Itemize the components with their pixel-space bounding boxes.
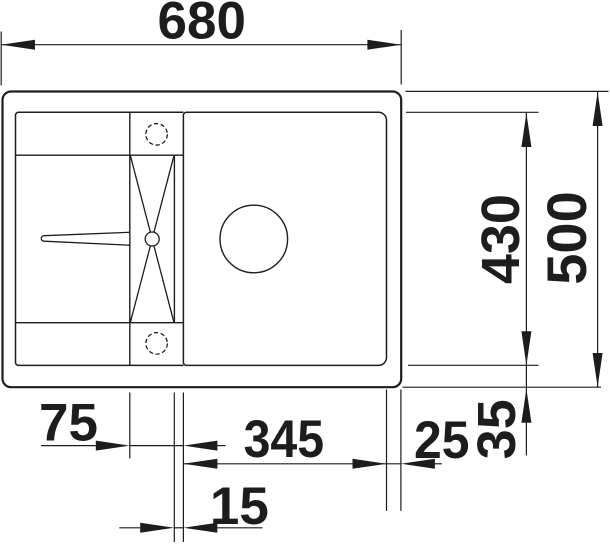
svg-text:500: 500 [535,191,598,284]
svg-text:430: 430 [471,194,531,284]
svg-text:680: 680 [158,0,246,50]
svg-text:15: 15 [210,477,269,536]
svg-text:25: 25 [414,411,470,470]
svg-text:345: 345 [244,410,325,469]
svg-text:75: 75 [39,394,98,453]
svg-text:35: 35 [467,399,527,459]
